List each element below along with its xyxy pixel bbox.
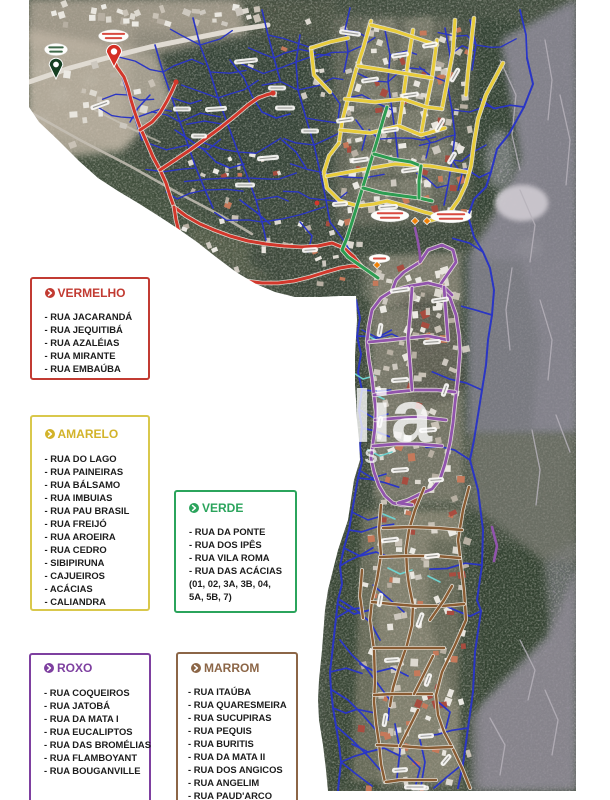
svg-text:S: S (364, 446, 377, 468)
